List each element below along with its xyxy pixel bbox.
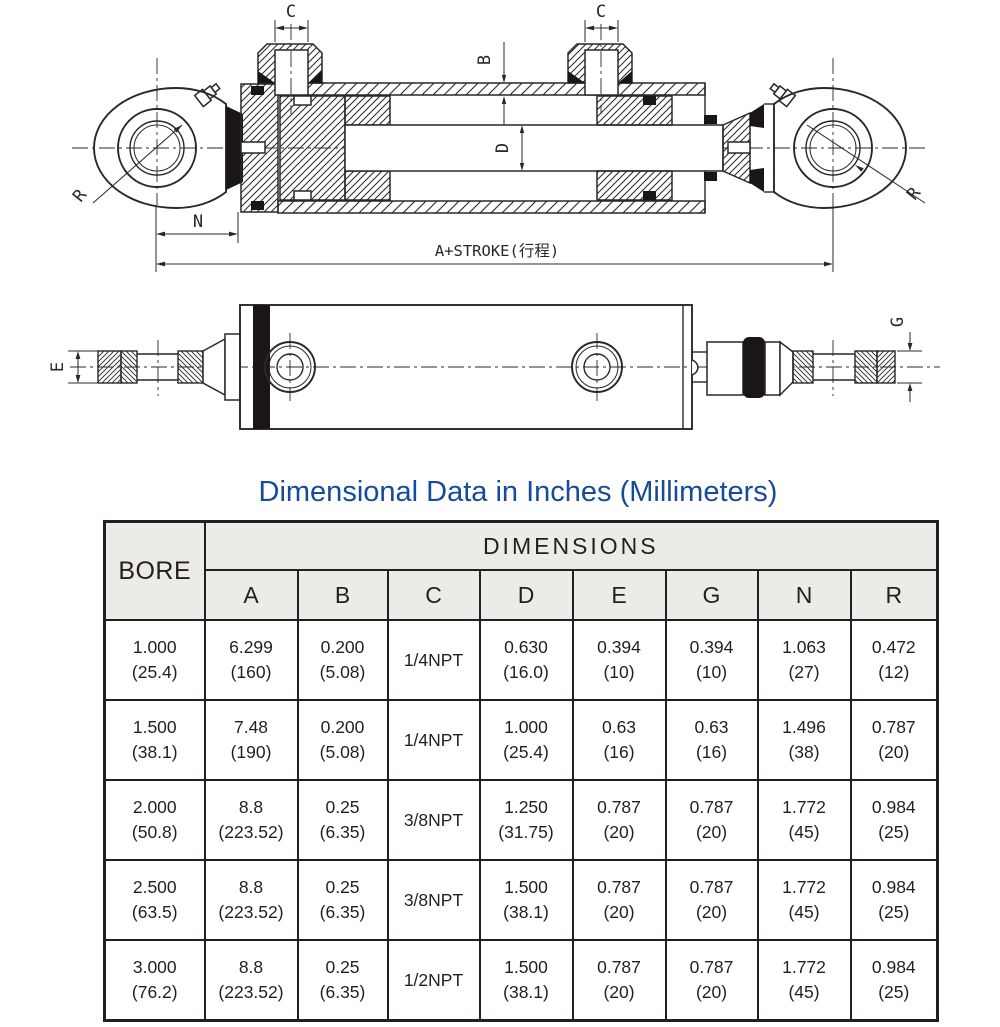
- cell-n: 1.772(45): [758, 860, 851, 940]
- dim-label-a-stroke: A+STROKE(行程): [435, 242, 559, 260]
- cell-n: 1.496(38): [758, 700, 851, 780]
- col-header-n: N: [758, 570, 851, 620]
- table-row: 1.500(38.1) 7.48(190) 0.200(5.08) 1/4NPT…: [105, 700, 938, 780]
- cell-a: 8.8(223.52): [205, 860, 298, 940]
- cell-b: 0.200(5.08): [298, 700, 388, 780]
- pin-left: [98, 334, 240, 400]
- cell-a: 6.299(160): [205, 620, 298, 700]
- cell-c: 3/8NPT: [388, 780, 480, 860]
- dim-label-c-right: C: [596, 2, 606, 22]
- dimension-table: BORE DIMENSIONS A B C D E G N R 1.000(25…: [103, 520, 939, 1022]
- dim-label-n: N: [193, 212, 203, 232]
- cell-d: 0.630(16.0): [480, 620, 573, 700]
- pin-right: [692, 337, 895, 398]
- cell-d: 1.500(38.1): [480, 940, 573, 1021]
- cell-c: 1/2NPT: [388, 940, 480, 1021]
- piston-rod: [345, 125, 723, 171]
- cell-r: 0.984(25): [851, 940, 938, 1021]
- cell-b: 0.25(6.35): [298, 860, 388, 940]
- cell-n: 1.772(45): [758, 940, 851, 1021]
- dim-a-stroke: [156, 262, 833, 267]
- table-row: 3.000(76.2) 8.8(223.52) 0.25(6.35) 1/2NP…: [105, 940, 938, 1021]
- cell-e: 0.63(16): [573, 700, 666, 780]
- dim-label-c-left: C: [286, 2, 296, 22]
- dim-label-r-left: R: [69, 185, 92, 206]
- table-row: 2.000(50.8) 8.8(223.52) 0.25(6.35) 3/8NP…: [105, 780, 938, 860]
- col-header-e: E: [573, 570, 666, 620]
- col-header-g: G: [666, 570, 758, 620]
- cell-c: 1/4NPT: [388, 700, 480, 780]
- cell-a: 7.48(190): [205, 700, 298, 780]
- cell-a: 8.8(223.52): [205, 940, 298, 1021]
- cell-e: 0.394(10): [573, 620, 666, 700]
- cell-r: 0.472(12): [851, 620, 938, 700]
- table-row: 1.000(25.4) 6.299(160) 0.200(5.08) 1/4NP…: [105, 620, 938, 700]
- cell-n: 1.772(45): [758, 780, 851, 860]
- cell-a: 8.8(223.52): [205, 780, 298, 860]
- cell-d: 1.500(38.1): [480, 860, 573, 940]
- dim-label-b: B: [475, 55, 495, 65]
- col-header-b: B: [298, 570, 388, 620]
- cell-b: 0.200(5.08): [298, 620, 388, 700]
- cell-d: 1.250(31.75): [480, 780, 573, 860]
- cell-g: 0.63(16): [666, 700, 758, 780]
- cell-c: 3/8NPT: [388, 860, 480, 940]
- cell-c: 1/4NPT: [388, 620, 480, 700]
- dim-label-g: G: [888, 317, 908, 327]
- cell-g: 0.787(20): [666, 780, 758, 860]
- cell-b: 0.25(6.35): [298, 940, 388, 1021]
- cell-g: 0.787(20): [666, 940, 758, 1021]
- table-row: 2.500(63.5) 8.8(223.52) 0.25(6.35) 3/8NP…: [105, 860, 938, 940]
- external-view: E: [48, 305, 940, 429]
- cell-e: 0.787(20): [573, 940, 666, 1021]
- table-title: Dimensional Data in Inches (Millimeters): [103, 476, 933, 509]
- cylinder-technical-drawing: R C: [0, 0, 1000, 470]
- cell-bore: 2.000(50.8): [105, 780, 205, 860]
- rod-end-neck: [723, 104, 774, 192]
- cell-g: 0.787(20): [666, 860, 758, 940]
- dimensions-header: DIMENSIONS: [205, 522, 938, 571]
- bore-header: BORE: [105, 522, 205, 621]
- col-header-a: A: [205, 570, 298, 620]
- cell-g: 0.394(10): [666, 620, 758, 700]
- cell-r: 0.984(25): [851, 860, 938, 940]
- dim-label-e: E: [48, 362, 68, 372]
- cell-b: 0.25(6.35): [298, 780, 388, 860]
- cell-n: 1.063(27): [758, 620, 851, 700]
- dim-label-d: D: [493, 143, 513, 153]
- cell-bore: 1.500(38.1): [105, 700, 205, 780]
- cell-e: 0.787(20): [573, 780, 666, 860]
- header-row-dimensions: BORE DIMENSIONS: [105, 522, 938, 571]
- cell-r: 0.787(20): [851, 700, 938, 780]
- cell-e: 0.787(20): [573, 860, 666, 940]
- cell-bore: 3.000(76.2): [105, 940, 205, 1021]
- datasheet-page: R C: [0, 0, 1000, 1027]
- col-header-d: D: [480, 570, 573, 620]
- cell-bore: 1.000(25.4): [105, 620, 205, 700]
- tube-wall-top: [278, 83, 705, 95]
- col-header-r: R: [851, 570, 938, 620]
- tube-wall-bottom: [278, 201, 705, 213]
- section-view: R C: [69, 2, 928, 272]
- col-header-c: C: [388, 570, 480, 620]
- cell-d: 1.000(25.4): [480, 700, 573, 780]
- cell-r: 0.984(25): [851, 780, 938, 860]
- header-row-letters: A B C D E G N R: [105, 570, 938, 620]
- cell-bore: 2.500(63.5): [105, 860, 205, 940]
